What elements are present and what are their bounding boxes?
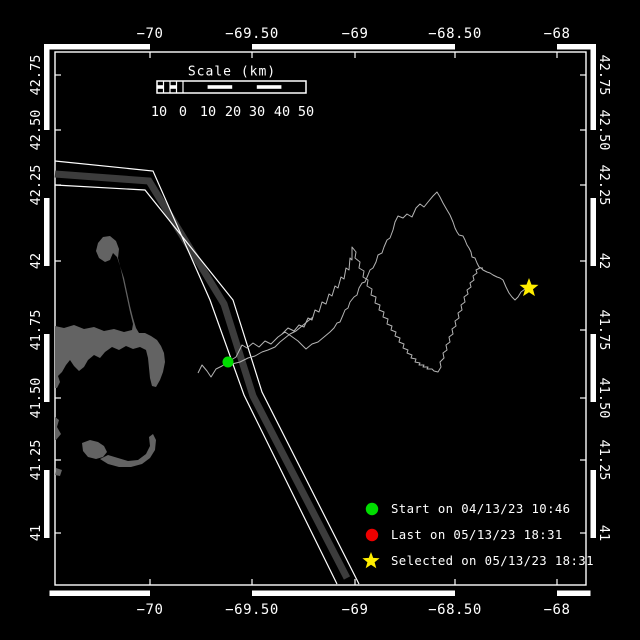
axis-label-right: 41 [596, 525, 612, 541]
track-line [282, 247, 483, 372]
scale-number: 30 [249, 104, 265, 120]
legend-label-1: Last on 05/13/23 18:31 [391, 528, 563, 542]
scale-number: 20 [225, 104, 241, 120]
map-canvas[interactable] [0, 0, 640, 640]
scale-bar-stripe [208, 85, 233, 89]
axis-label-top: −69.50 [225, 26, 279, 42]
zebra-black-segment [150, 44, 252, 50]
axis-label-bottom: −69.50 [225, 602, 279, 618]
scale-bar-stripe [170, 85, 177, 89]
land-polygon [100, 434, 156, 467]
axis-label-left: 41.75 [28, 310, 44, 351]
lane-band [55, 174, 347, 578]
axis-label-left: 41.50 [28, 378, 44, 419]
vehicle-track [198, 192, 529, 377]
track-markers[interactable] [223, 278, 539, 368]
tracking-map-window: Scale (km) Start on 04/13/23 10:46Last o… [0, 0, 640, 640]
land-polygon [55, 236, 165, 388]
lane-edge-line [55, 161, 337, 584]
axis-label-top: −68 [544, 26, 571, 42]
scale-number: 0 [179, 104, 187, 120]
scale-number: 40 [274, 104, 290, 120]
traffic-lane [55, 161, 359, 584]
axis-label-right: 42 [596, 253, 612, 269]
axis-label-right: 42.50 [596, 110, 612, 151]
scale-number: 10 [151, 104, 167, 120]
axis-label-right: 41.75 [596, 310, 612, 351]
axis-label-left: 42.50 [28, 110, 44, 151]
scale-bar-graphic [157, 81, 306, 93]
zebra-black-segment [44, 130, 50, 198]
land-polygon [55, 417, 61, 440]
selected-marker[interactable] [520, 278, 539, 296]
legend-marker-2 [362, 552, 379, 568]
land-polygon [82, 440, 107, 459]
land-polygon [55, 468, 62, 476]
axis-label-bottom: −68 [544, 602, 571, 618]
zebra-black-segment [44, 538, 50, 596]
axis-label-left: 42 [28, 253, 44, 269]
zebra-black-segment [44, 402, 50, 470]
axis-label-left: 42.75 [28, 55, 44, 96]
scale-bar-stripe [157, 85, 164, 89]
zebra-black-segment [455, 44, 557, 50]
axis-label-top: −69 [342, 26, 369, 42]
axis-label-left: 41 [28, 525, 44, 541]
axis-label-top: −68.50 [428, 26, 482, 42]
zebra-black-segment [455, 591, 557, 597]
legend-marker-1 [366, 529, 378, 541]
legend-label-2: Selected on 05/13/23 18:31 [391, 554, 594, 568]
scale-bar-title: Scale (km) [188, 65, 276, 80]
legend-marker-0 [366, 503, 378, 515]
axis-label-left: 42.25 [28, 165, 44, 206]
zebra-black-segment [44, 266, 50, 334]
axis-label-bottom: −68.50 [428, 602, 482, 618]
axis-label-right: 41.50 [596, 378, 612, 419]
axis-label-bottom: −70 [137, 602, 164, 618]
track-line [198, 192, 529, 377]
start-marker[interactable] [223, 357, 234, 368]
axis-label-right: 41.25 [596, 440, 612, 481]
scale-number: 10 [200, 104, 216, 120]
zebra-black-segment [150, 591, 252, 597]
axis-label-bottom: −69 [342, 602, 369, 618]
legend-label-0: Start on 04/13/23 10:46 [391, 502, 570, 516]
axis-label-top: −70 [137, 26, 164, 42]
cape-cod-landmass [55, 236, 165, 476]
axis-label-right: 42.75 [596, 55, 612, 96]
axis-label-right: 42.25 [596, 165, 612, 206]
axis-label-left: 41.25 [28, 440, 44, 481]
legend-markers [362, 503, 379, 569]
scale-bar-stripe [257, 85, 282, 89]
scale-number: 50 [298, 104, 314, 120]
